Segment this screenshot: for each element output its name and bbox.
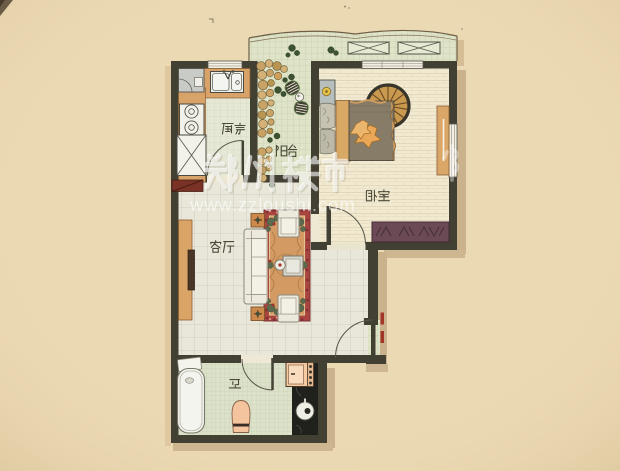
svg-text:www.zzloushi.com: www.zzloushi.com (189, 194, 356, 215)
